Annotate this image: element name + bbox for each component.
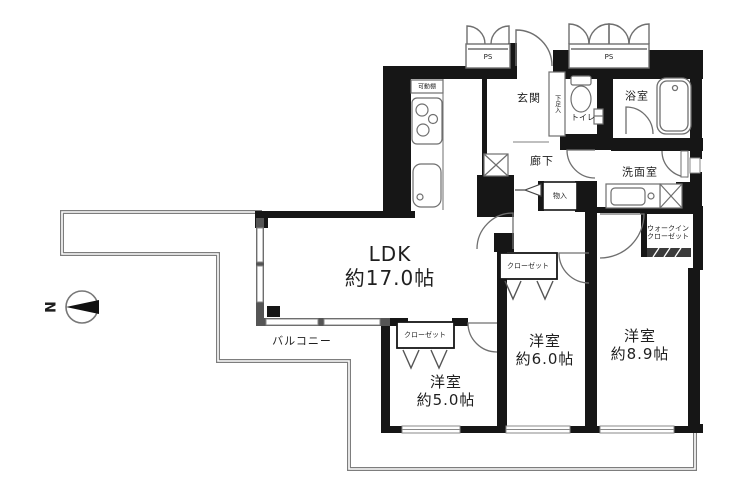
bedroom5-name: 洋室 [417,373,476,391]
stove-icon [412,98,442,144]
wic-hatch [647,248,691,257]
shoe-cupboard-label: 下足入 [553,95,560,113]
ldk-label: LDK 約17.0帖 [345,242,436,290]
folding-door-icon [515,184,541,196]
vanity-icon [606,184,660,208]
ps1-label: PS [484,53,493,61]
entrance-door-arc [516,30,552,66]
bedroom8-name: 洋室 [611,327,670,345]
wic-label: ウォークイン クローゼット [647,225,689,242]
ldk-size: 約17.0帖 [345,266,436,290]
bedroom6-closet-label: クローゼット [507,262,549,270]
bedroom6-label: 洋室 約6.0帖 [516,332,575,368]
bedroom5-size: 約5.0帖 [417,391,476,409]
bedroom8-size: 約8.9帖 [611,345,670,363]
sink-icon [413,164,441,207]
bath-label: 浴室 [625,89,649,102]
bedroom5-label: 洋室 約5.0帖 [417,373,476,409]
toilet-label: トイレ [571,113,595,123]
ldk-name: LDK [345,242,436,266]
kitchen-shelf-label: 可動棚 [418,83,436,90]
bedroom6-size: 約6.0帖 [516,350,575,368]
bedroom5-closet-label: クローゼット [404,331,446,339]
bedroom6-name: 洋室 [516,332,575,350]
north-arrow-icon [66,291,99,323]
ps2-label: PS [605,53,614,61]
kitchen-counter [411,79,443,210]
balcony-label: バルコニー [272,334,332,347]
linen-door-leaf [681,151,688,177]
storage-label: 物入 [553,192,567,200]
wic-label-line2: クローゼット [647,233,689,241]
bathtub-icon [657,78,691,134]
floor-plan: PS PS 玄関 下足入 トイレ 浴室 可動棚 廊下 物入 洗面室 ウォークイン… [0,0,739,500]
north-label: N [44,301,61,313]
entrance-label: 玄関 [517,91,541,104]
washroom-label: 洗面室 [622,165,658,178]
hallway-label: 廊下 [530,154,554,167]
bedroom8-label: 洋室 約8.9帖 [611,327,670,363]
